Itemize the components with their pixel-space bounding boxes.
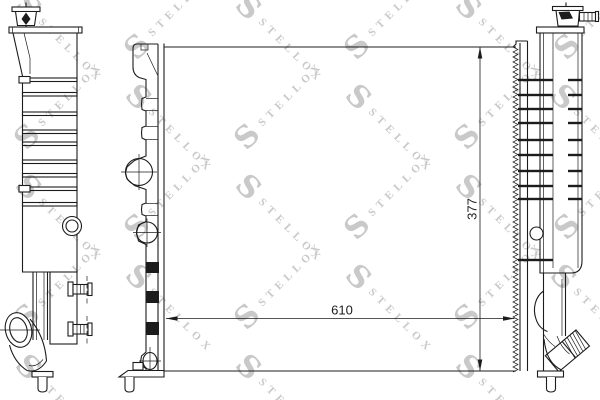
tube-band [23,130,78,134]
tube-tick [568,94,582,96]
tank-flange-left [9,27,82,33]
radiator-diagram-svg: 610 377 [0,0,600,400]
filler-cap-right [553,3,584,27]
sensor-boss [63,217,82,236]
dimension-core-width: 610 [166,303,515,321]
mounting-hole-lower [133,219,161,248]
left-tank-side-view [0,3,92,393]
tube-tick [518,198,553,200]
tube-tick [568,108,582,110]
tube-tick [518,259,553,261]
tube-tick [518,185,553,187]
mounting-pin [38,377,47,392]
drain-boss [530,227,543,240]
tube-band [23,78,78,82]
tube-band [23,142,78,146]
tube-tick [568,185,582,187]
tank-body-right [540,33,582,273]
tube-tick [518,139,553,141]
mounting-stud-lower [68,316,92,344]
mounting-stud-upper [68,276,92,304]
core-tube-bands [23,78,78,206]
tube-band [23,203,78,207]
tube-band [23,93,78,97]
tank-flange-right [537,27,585,33]
width-dimension-label: 610 [331,303,353,318]
dimension-core-height: 377 [465,47,483,371]
tube-tick [518,79,553,81]
bracket-outline [126,44,159,371]
tube-tick [518,108,553,110]
mounting-foot-left [32,372,53,393]
tube-band [23,187,78,191]
bracket-ribs [146,99,158,216]
filler-cap-left [12,3,40,28]
tube-tick [568,79,582,81]
right-tank-front-view [513,3,599,393]
tube-end-block [146,291,159,303]
outlet-pipe-left [0,310,47,371]
tube-end-block [146,262,159,273]
tube-tick [518,94,553,96]
mounting-pin [125,377,134,392]
tube-band [23,160,78,164]
tube-band [23,174,78,178]
tube-end-block [146,322,159,335]
mounting-foot-right [538,371,564,392]
clip-tab [19,77,30,84]
tank-body-left [13,33,82,272]
tube-tick [568,122,582,124]
tube-band [23,112,78,116]
side-bracket-profile [119,44,164,393]
arrow-up-icon [478,47,483,59]
tube-ticks-right [568,79,582,200]
height-dimension-label: 377 [465,198,480,220]
clip-tab [19,186,30,193]
mounting-foot-middle [119,371,164,393]
mounting-hole-upper [121,154,157,190]
tube-tick [518,122,553,124]
tube-tick [568,139,582,141]
arrow-down-icon [478,360,483,372]
outlet-pipe-right [544,330,589,372]
tube-tick [568,170,582,172]
tube-tick [568,198,582,200]
overflow-pipe [580,12,599,22]
radiator-technical-drawing: SSTELLOXSSTELLOXSSTELLOXSSTELLOXSSTELLOX… [0,0,600,400]
core-fin-edge [513,47,518,372]
tube-tick [518,154,553,156]
mounting-pin [547,377,556,392]
tube-tick [518,170,553,172]
arrow-left-icon [166,316,178,321]
tube-tick [568,154,582,156]
